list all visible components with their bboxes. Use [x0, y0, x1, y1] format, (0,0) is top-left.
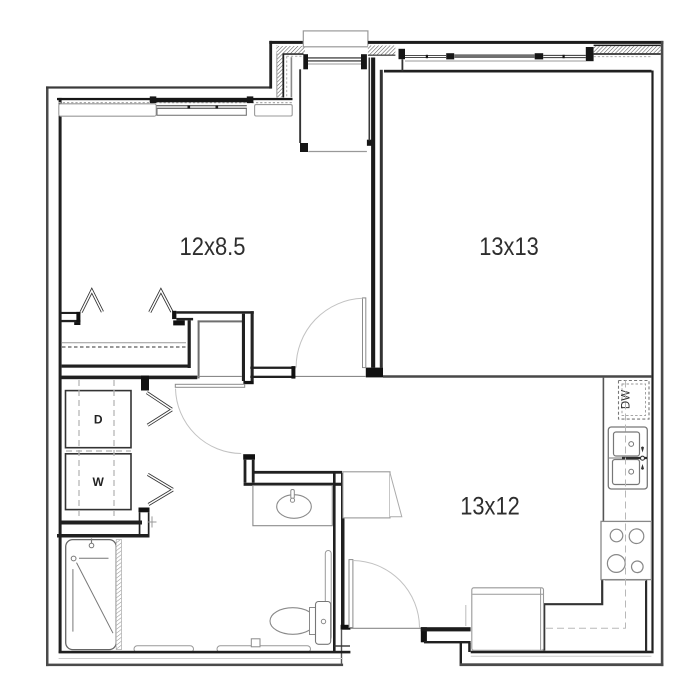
svg-text:12x8.5: 12x8.5 [180, 233, 246, 261]
svg-text:W: W [93, 475, 105, 489]
svg-text:13x12: 13x12 [460, 493, 520, 521]
svg-text:DW: DW [621, 390, 633, 409]
svg-text:13x13: 13x13 [479, 233, 539, 261]
svg-text:D: D [94, 413, 103, 427]
